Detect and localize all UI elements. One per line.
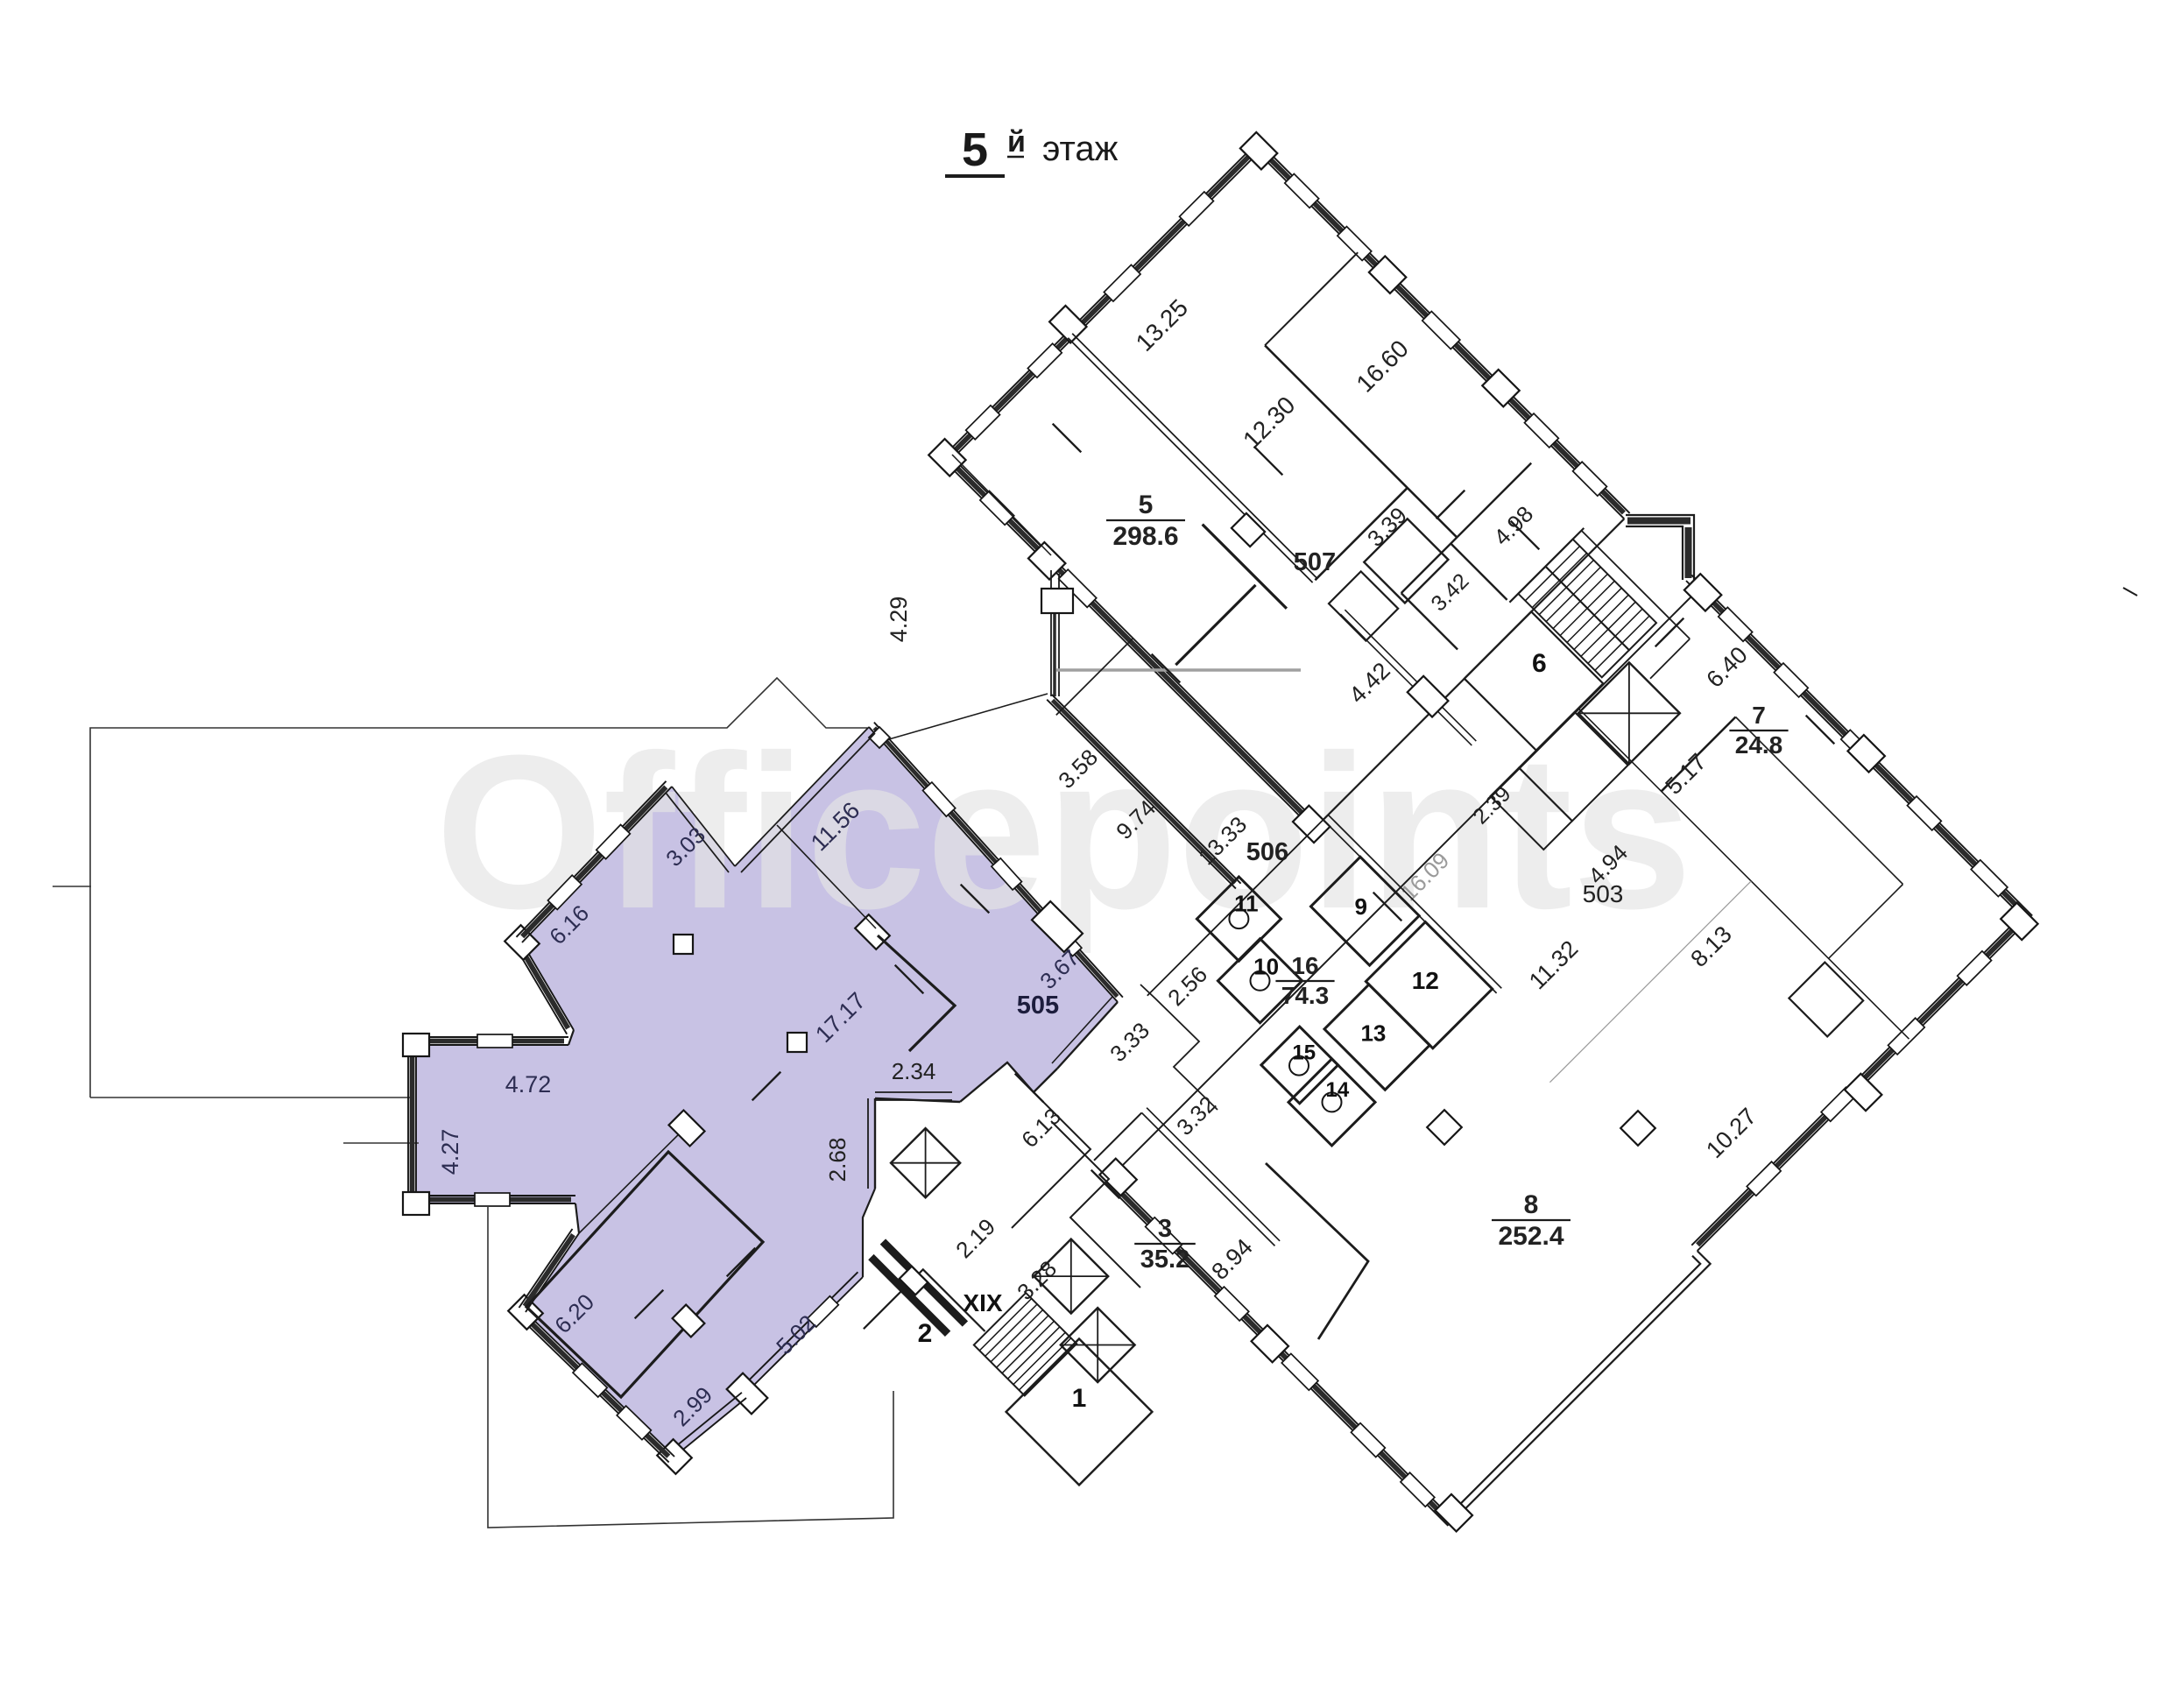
svg-text:2: 2 xyxy=(918,1319,933,1348)
svg-text:7: 7 xyxy=(1752,702,1766,729)
svg-text:14: 14 xyxy=(1326,1078,1350,1102)
svg-text:506: 506 xyxy=(1246,838,1288,866)
svg-text:12: 12 xyxy=(1412,967,1439,994)
svg-text:298.6: 298.6 xyxy=(1112,522,1178,551)
svg-text:13: 13 xyxy=(1360,1020,1386,1046)
svg-text:503: 503 xyxy=(1583,880,1624,907)
svg-text:11: 11 xyxy=(1234,891,1259,917)
svg-text:й: й xyxy=(1007,125,1026,159)
svg-text:3: 3 xyxy=(1158,1215,1172,1243)
svg-text:16: 16 xyxy=(1291,952,1318,979)
svg-text:24.8: 24.8 xyxy=(1735,731,1783,759)
svg-text:4.27: 4.27 xyxy=(437,1129,463,1175)
svg-text:507: 507 xyxy=(1294,548,1336,576)
svg-text:15: 15 xyxy=(1292,1041,1316,1065)
svg-text:35.2: 35.2 xyxy=(1140,1246,1189,1274)
svg-text:5: 5 xyxy=(1139,491,1154,519)
svg-text:XIX: XIX xyxy=(963,1289,1002,1316)
svg-text:74.3: 74.3 xyxy=(1281,982,1330,1009)
svg-text:1: 1 xyxy=(1072,1384,1087,1413)
svg-text:6: 6 xyxy=(1532,649,1547,678)
svg-text:4.29: 4.29 xyxy=(886,596,912,643)
svg-text:этаж: этаж xyxy=(1042,130,1119,168)
svg-text:8: 8 xyxy=(1524,1190,1539,1219)
svg-text:10: 10 xyxy=(1253,954,1279,980)
svg-text:5: 5 xyxy=(962,124,988,176)
svg-text:252.4: 252.4 xyxy=(1498,1222,1563,1251)
svg-text:2.34: 2.34 xyxy=(892,1058,936,1084)
svg-text:505: 505 xyxy=(1017,992,1059,1020)
svg-text:9: 9 xyxy=(1354,893,1366,920)
svg-text:2.68: 2.68 xyxy=(824,1138,851,1182)
svg-text:4.72: 4.72 xyxy=(505,1071,552,1097)
